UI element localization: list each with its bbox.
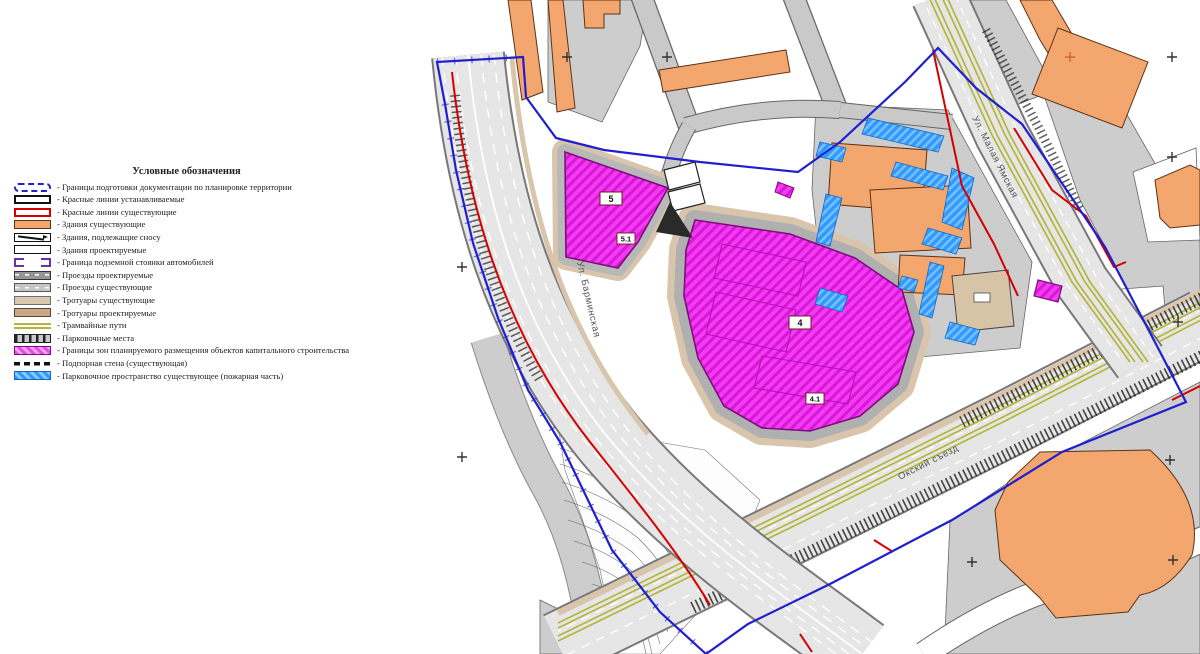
underground-parking-swatch xyxy=(14,258,51,267)
svg-text:5.1: 5.1 xyxy=(621,235,631,244)
boundary-swatch xyxy=(14,183,51,192)
legend-item: - Проезды существующие xyxy=(14,283,444,293)
svg-text:4.1: 4.1 xyxy=(810,395,820,404)
building-exist-swatch xyxy=(14,220,51,229)
legend-item: - Здания, подлежащие сносу xyxy=(14,232,444,242)
legend: Условные обозначения - Границы подготовк… xyxy=(14,166,444,384)
site-plan-page: Условные обозначения - Границы подготовк… xyxy=(0,0,1200,654)
legend-title: Условные обозначения xyxy=(14,166,359,177)
zone-label-5: 5 xyxy=(600,192,622,205)
legend-item: - Тротуары существующие xyxy=(14,295,444,305)
sidewalk-proj-swatch xyxy=(14,308,51,317)
legend-item: - Парковочное пространство существующее … xyxy=(14,371,444,381)
capital-zone-swatch xyxy=(14,346,51,355)
legend-item: - Проезды проектируемые xyxy=(14,270,444,280)
legend-item: - Парковочные места xyxy=(14,333,444,343)
retaining-wall-swatch xyxy=(14,359,51,368)
legend-item: - Здания существующие xyxy=(14,220,444,230)
legend-item: - Трамвайные пути xyxy=(14,321,444,331)
legend-item: - Красные линии существующие xyxy=(14,207,444,217)
legend-item: - Границы подготовки документации по пла… xyxy=(14,182,444,192)
parking-places-swatch xyxy=(14,334,51,343)
fire-parking-swatch xyxy=(14,371,51,380)
building-sidewalk-tan xyxy=(952,270,1014,332)
legend-item: - Подпорная стена (существующая) xyxy=(14,358,444,368)
zone-label-5-1: 5.1 xyxy=(617,233,635,244)
legend-item: - Красные линии устанавливаемые xyxy=(14,195,444,205)
svg-text:5: 5 xyxy=(608,194,613,204)
legend-item: - Границы зон планируемого размещения об… xyxy=(14,346,444,356)
legend-item: - Граница подземной стоянки автомобилей xyxy=(14,258,444,268)
drive-exist-swatch xyxy=(14,283,51,292)
building-proj-swatch xyxy=(14,245,51,254)
red-line-exist-swatch xyxy=(14,208,51,217)
sidewalk-exist-swatch xyxy=(14,296,51,305)
building-demolish-swatch xyxy=(14,233,51,242)
drive-proj-swatch xyxy=(14,271,51,280)
legend-item: - Тротуары проектируемые xyxy=(14,308,444,318)
svg-text:4: 4 xyxy=(797,318,802,328)
zone-label-4-1: 4.1 xyxy=(806,393,824,404)
legend-item: - Здания проектируемые xyxy=(14,245,444,255)
tram-swatch xyxy=(14,321,51,330)
red-line-set-swatch xyxy=(14,195,51,204)
zone-label-4: 4 xyxy=(789,316,811,329)
